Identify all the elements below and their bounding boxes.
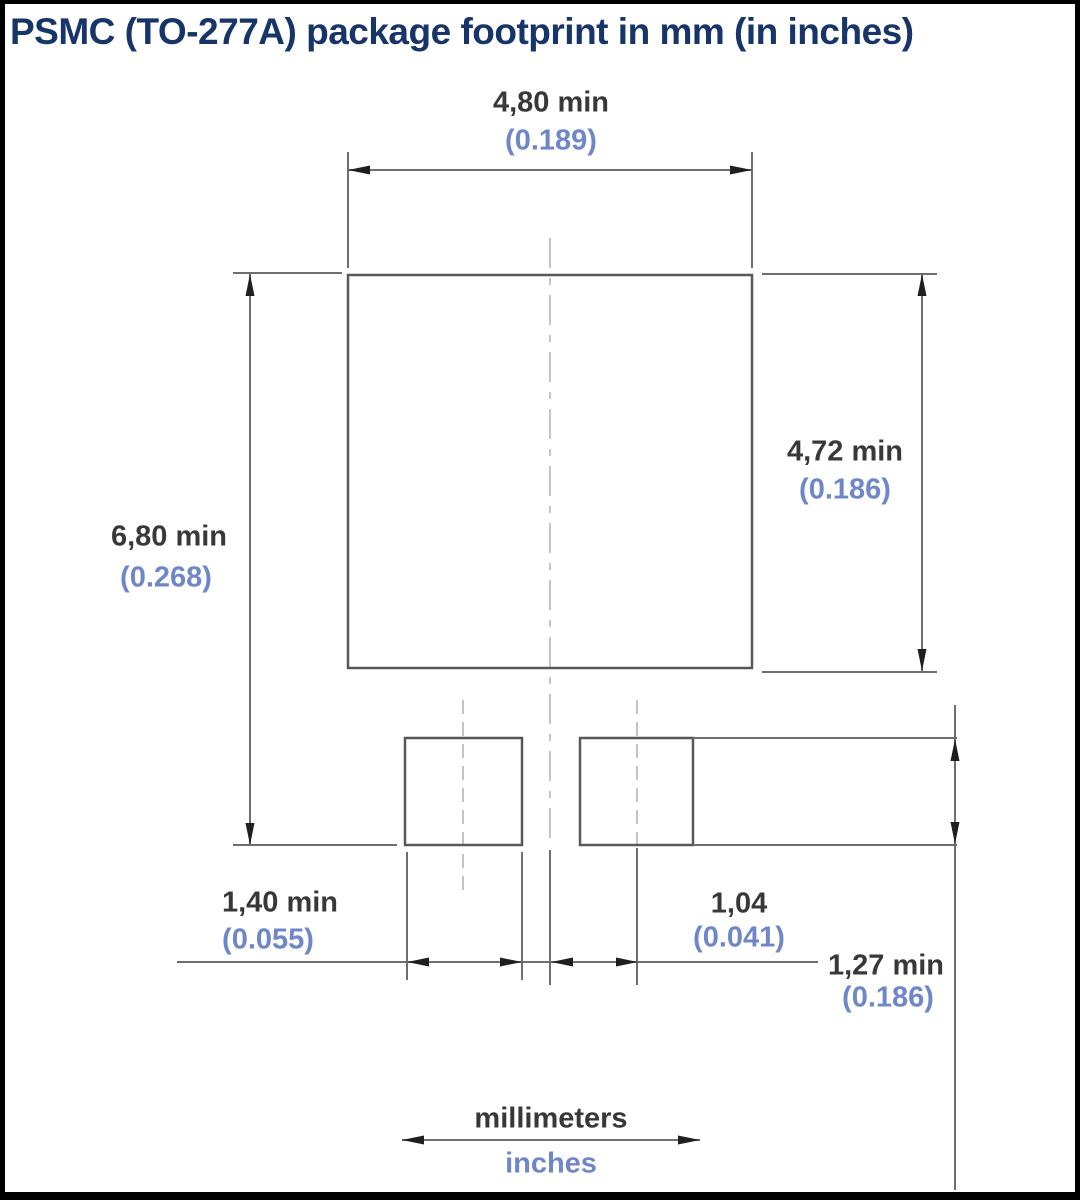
dim-pin-pad-height-mm-label: 1,27 min [828,952,944,981]
dim-top-width-inch-label: (0.189) [505,127,597,156]
legend-inches-label: inches [505,1150,597,1179]
dim-right-height-mm-label: 4,72 min [787,438,903,467]
left-overall-height-dimension-lines [233,273,397,845]
footprint-linework [0,0,1080,1200]
dim-pin-pad-width-inch-label: (0.055) [222,926,314,955]
dim-pin-pad-height-inch-label: (0.186) [842,984,934,1013]
dim-pin-pad-offset-mm-label: 1,04 [711,890,767,919]
dim-left-overall-height-mm-label: 6,80 min [111,523,227,552]
dim-pin-pad-width-mm-label: 1,40 min [222,889,338,918]
dim-pin-pad-offset-inch-label: (0.041) [693,924,785,953]
dim-right-height-inch-label: (0.186) [799,476,891,505]
package-footprint-drawing: PSMC (TO-277A) package footprint in mm (… [0,0,1080,1200]
dim-top-width-mm-label: 4,80 min [493,89,609,118]
dim-left-overall-height-inch-label: (0.268) [120,564,212,593]
legend-millimeters-label: millimeters [474,1105,627,1134]
